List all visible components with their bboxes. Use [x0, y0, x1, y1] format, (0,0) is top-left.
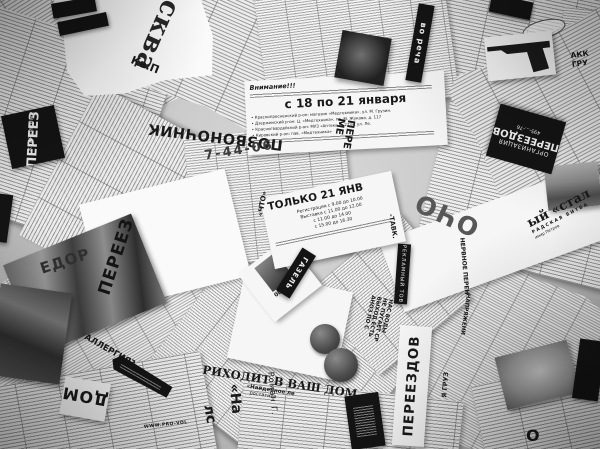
dark-object-photo [334, 30, 392, 86]
pistol-photo [484, 31, 556, 82]
text-fragment: ПЕРЕЕЗ [24, 110, 42, 167]
text-o: О [526, 426, 548, 448]
text-akk-gru: АКК ГРУ [570, 48, 600, 80]
newspaper-collage-photo: оскваКВАРТИРНЫЕПЕРЕЕЗКв.ПВнимание!!!с 18… [0, 0, 600, 449]
text-na: «На [220, 383, 246, 435]
ad-kvartirnye-pereezdy: КВАРТИРНЫЕПЕРЕЕЗ [1, 105, 65, 169]
coins-photo [324, 348, 358, 382]
label-dom: ДОМ [59, 376, 111, 421]
text-fragment: РЕКЛАМНЫЙ ТОВ [397, 245, 407, 303]
text-fragment: ДОМ [61, 383, 110, 410]
text-fragment [353, 405, 377, 438]
text-fragment: ПЕРЕЕЗДОВ [400, 335, 423, 437]
dark-ad-box [344, 392, 385, 449]
people-photo [0, 283, 72, 384]
